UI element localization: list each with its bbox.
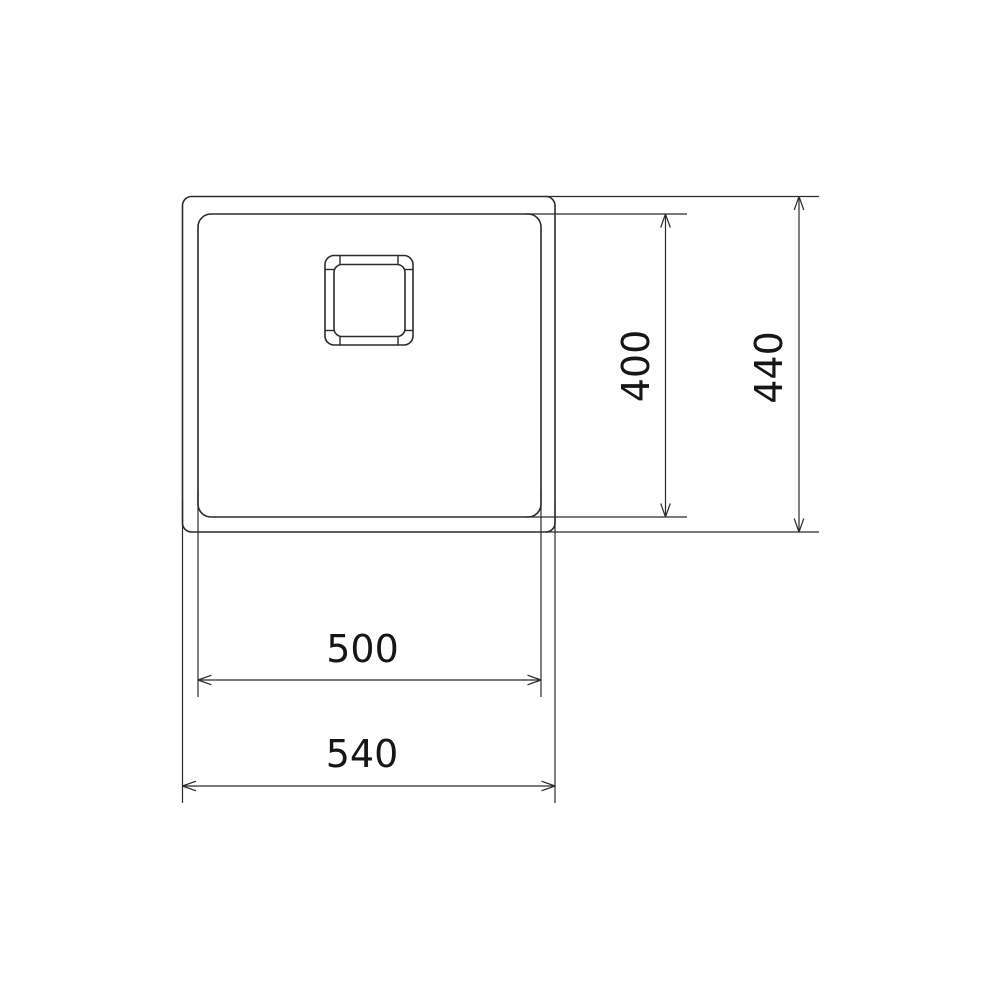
dim-overall-width-arrow-start-b xyxy=(183,786,197,791)
sink-outer-rim xyxy=(183,197,556,533)
dim-bowl-height-arrow-end-b xyxy=(666,504,671,518)
dim-bowl-height-arrow-end-a xyxy=(661,504,666,518)
dim-bowl-height-label: 400 xyxy=(614,330,658,403)
dim-overall-width-arrow-start-a xyxy=(183,781,197,786)
drain-inner xyxy=(334,265,405,337)
dim-overall-height-label: 440 xyxy=(747,331,791,404)
dim-overall-width-label: 540 xyxy=(326,732,399,776)
dim-overall-height-arrow-start-a xyxy=(794,197,799,211)
sink-dimension-drawing: 400440500540 xyxy=(0,0,1000,1000)
dim-bowl-height-arrow-start-a xyxy=(661,214,666,228)
dim-bowl-height-arrow-start-b xyxy=(666,214,671,228)
drain-outer xyxy=(325,256,413,346)
dim-bowl-width-arrow-end-a xyxy=(528,675,542,680)
dim-bowl-width-label: 500 xyxy=(326,627,399,671)
dim-overall-height-arrow-end-b xyxy=(799,519,804,533)
dim-overall-height-arrow-start-b xyxy=(799,197,804,211)
dim-overall-height-arrow-end-a xyxy=(794,519,799,533)
dim-bowl-width-arrow-start-b xyxy=(198,680,212,685)
dim-bowl-width-arrow-start-a xyxy=(198,675,212,680)
dim-overall-width-arrow-end-b xyxy=(542,786,556,791)
dim-overall-width-arrow-end-a xyxy=(542,781,556,786)
technical-drawing-canvas: 400440500540 xyxy=(0,0,1000,1000)
dim-bowl-width-arrow-end-b xyxy=(528,680,542,685)
sink-bowl xyxy=(198,214,541,517)
